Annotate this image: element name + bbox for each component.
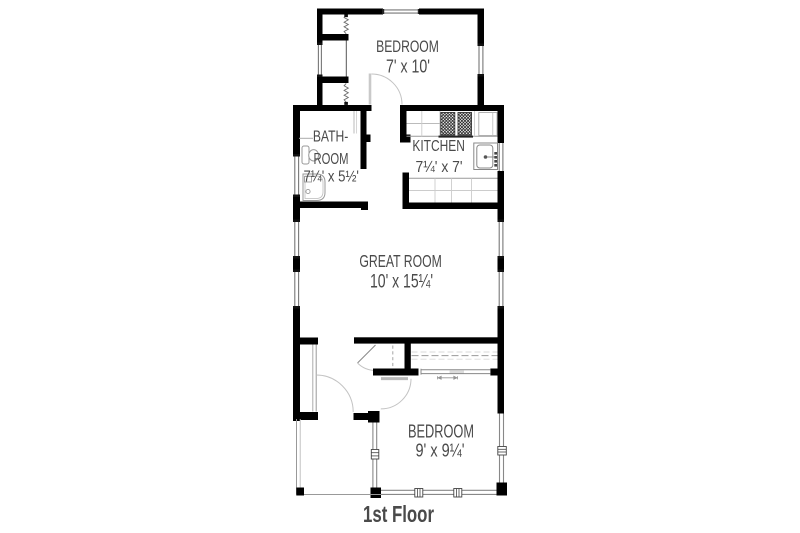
svg-text:BEDROOM: BEDROOM <box>376 38 439 56</box>
svg-text:KITCHEN: KITCHEN <box>412 138 465 155</box>
svg-text:10' x 15¼': 10' x 15¼' <box>370 272 433 293</box>
svg-text:7¼' x 7': 7¼' x 7' <box>416 159 463 176</box>
svg-text:ROOM: ROOM <box>314 151 349 168</box>
svg-text:7¼' x 5½': 7¼' x 5½' <box>303 169 359 186</box>
svg-text:9' x 9¼': 9' x 9¼' <box>416 440 465 461</box>
svg-text:7' x 10': 7' x 10' <box>386 57 430 77</box>
svg-text:BATH-: BATH- <box>313 128 349 145</box>
svg-text:GREAT ROOM: GREAT ROOM <box>359 251 442 271</box>
svg-text:1st Floor: 1st Floor <box>363 501 434 527</box>
svg-text:BEDROOM: BEDROOM <box>408 422 474 442</box>
